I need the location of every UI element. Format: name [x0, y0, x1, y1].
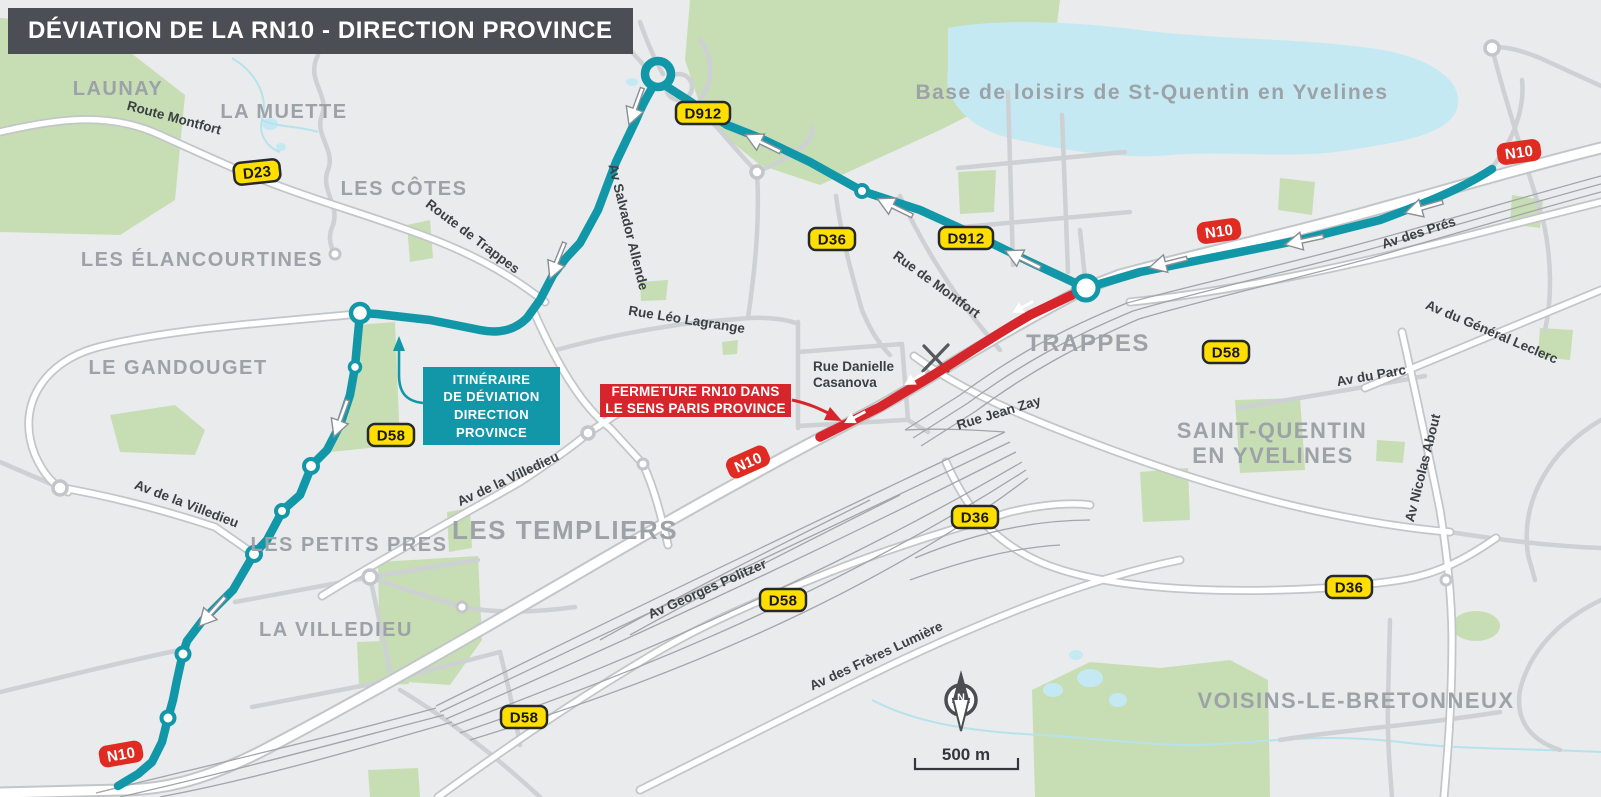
closure-callout-line: LE SENS PARIS PROVINCE: [605, 401, 785, 417]
district-label-le-gandouget: LE GANDOUGET: [88, 357, 267, 379]
svg-text:D58: D58: [1212, 345, 1240, 362]
deviation-callout-line: ITINÉRAIRE: [453, 371, 531, 389]
svg-text:N: N: [957, 692, 965, 704]
road-badge-d58: D58: [501, 706, 547, 728]
svg-text:D58: D58: [510, 710, 538, 727]
district-label-voisins-le-bretonneux: VOISINS-LE-BRETONNEUX: [1197, 688, 1514, 713]
road-badge-d36: D36: [952, 506, 998, 528]
compass-north-icon: N: [946, 670, 976, 731]
road-badge-d36: D36: [809, 228, 855, 250]
street-label-rue-de-montfort: Rue de Montfort: [890, 248, 983, 321]
street-label-av-de-la-villedieu-center: Av de la Villedieu: [455, 449, 561, 509]
district-label-en-yvelines: EN YVELINES: [1192, 443, 1354, 468]
district-label-trappes: TRAPPES: [1026, 330, 1150, 357]
district-label-launay: LAUNAY: [73, 78, 164, 100]
street-label-av-salvador-allende: Av Salvador Allende: [605, 162, 651, 292]
district-label-la-villedieu: LA VILLEDIEU: [259, 619, 413, 641]
road-badge-d58: D58: [1203, 341, 1249, 363]
road-badge-d912: D912: [939, 227, 993, 249]
district-label-la-muette: LA MUETTE: [220, 101, 347, 123]
district-label-saint-quentin: SAINT-QUENTIN: [1177, 418, 1368, 443]
deviation-callout-line: PROVINCE: [456, 424, 527, 442]
district-label-les-petits-pres: LES PETITS PRES: [251, 534, 448, 556]
road-badge-d58: D58: [368, 424, 414, 446]
road-badge-d912: D912: [676, 102, 730, 124]
svg-text:D912: D912: [947, 231, 984, 248]
district-label-les-templiers: LES TEMPLIERS: [452, 515, 678, 545]
road-badge-d23: D23: [233, 159, 281, 186]
road-badge-d58: D58: [760, 589, 806, 611]
street-label-av-georges-politzer: Av Georges Politzer: [646, 556, 770, 622]
map-canvas: D23 D912 D912 D36 D36 D36 D58 D58: [0, 0, 1601, 797]
svg-text:D912: D912: [684, 106, 721, 123]
road-badge-n10: N10: [97, 739, 144, 768]
closure-callout-box: FERMETURE RN10 DANS LE SENS PARIS PROVIN…: [600, 384, 791, 417]
svg-text:D58: D58: [769, 593, 797, 610]
street-label-av-des-freres-lumiere: Av des Frères Lumière: [807, 618, 945, 693]
district-label-les-cotes: LES CÔTES: [341, 176, 468, 200]
deviation-callout-line: DIRECTION: [454, 406, 529, 424]
road-badge-d36: D36: [1326, 576, 1372, 598]
deviation-callout-box: ITINÉRAIRE DE DÉVIATION DIRECTION PROVIN…: [423, 367, 560, 445]
svg-text:D36: D36: [1335, 580, 1363, 597]
deviation-callout-line: DE DÉVIATION: [443, 388, 539, 406]
svg-text:D23: D23: [242, 163, 272, 183]
svg-text:D58: D58: [377, 428, 405, 445]
scale-bar: 500 m: [915, 745, 1018, 769]
street-label-rue-danielle: Rue Danielle: [813, 359, 895, 374]
closure-callout-line: FERMETURE RN10 DANS: [611, 384, 779, 400]
street-label-casanova: Casanova: [813, 375, 877, 390]
svg-text:500 m: 500 m: [942, 745, 990, 764]
district-label-base-de-loisirs: Base de loisirs de St-Quentin en Yveline…: [915, 81, 1388, 104]
svg-text:D36: D36: [818, 232, 846, 249]
street-label-rue-jean-zay: Rue Jean Zay: [955, 393, 1043, 433]
map-title: DÉVIATION DE LA RN10 - DIRECTION PROVINC…: [8, 8, 633, 54]
svg-text:D36: D36: [961, 510, 989, 527]
map-page: D23 D912 D912 D36 D36 D36 D58 D58: [0, 0, 1601, 797]
district-label-les-elancourtines: LES ÉLANCOURTINES: [81, 248, 323, 271]
